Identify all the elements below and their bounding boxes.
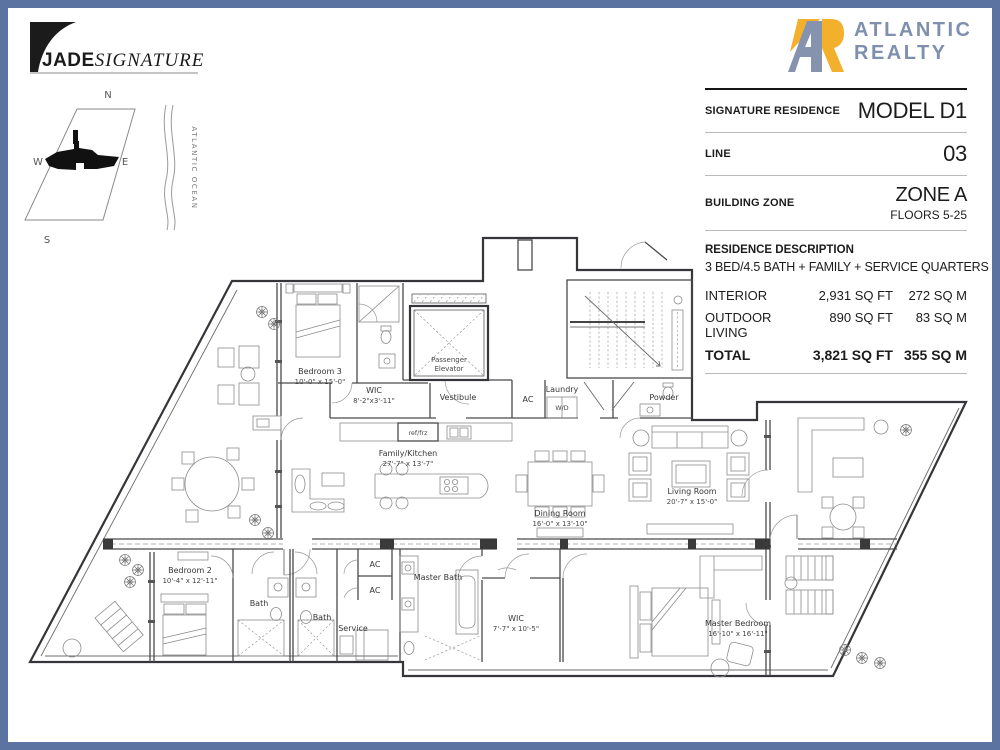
room-label: Dining Room bbox=[534, 509, 585, 518]
room-dims: 16'-10" x 16'-11" bbox=[708, 630, 768, 638]
central-wall-band bbox=[103, 515, 897, 575]
room-dims: 20'-7" x 15'-0" bbox=[667, 498, 718, 506]
room-label: Family/Kitchen bbox=[379, 449, 438, 458]
room-label: Elevator bbox=[434, 365, 463, 373]
room-label: Bath bbox=[313, 613, 332, 622]
brochure-page: JADESIGNATURE ATLANTIC REALTY SIGNATURE … bbox=[0, 0, 1000, 750]
room-dims: 7'-7" x 10'-5" bbox=[493, 625, 539, 633]
room-label: Master Bath bbox=[414, 573, 462, 582]
room-label: Bath bbox=[250, 599, 269, 608]
exterior-walls bbox=[30, 238, 966, 676]
room-label: W/D bbox=[555, 405, 568, 412]
room-label: ref/frz bbox=[409, 430, 428, 437]
bedroom3-furniture bbox=[286, 284, 350, 357]
room-label: Passenger bbox=[431, 356, 467, 364]
service-furniture bbox=[340, 630, 388, 660]
bath3-fixtures bbox=[359, 286, 399, 368]
room-label: Bedroom 3 bbox=[298, 367, 342, 376]
room-label: Living Room bbox=[667, 487, 716, 496]
floor-plan: Bedroom 3 10'-0" x 15'-0" WIC 8'-2"x3'-1… bbox=[0, 0, 1000, 750]
room-dims: 8'-2"x3'-11" bbox=[353, 397, 395, 405]
room-label: Master Bedroom bbox=[705, 619, 771, 628]
terrace-glass-walls bbox=[148, 283, 771, 676]
stairwell bbox=[567, 280, 692, 378]
room-dims: 10'-4" x 12'-11" bbox=[162, 577, 217, 585]
room-label: Laundry bbox=[546, 385, 579, 394]
room-label: AC bbox=[370, 586, 381, 595]
room-label: AC bbox=[523, 395, 534, 404]
family-room-sofa bbox=[292, 469, 344, 512]
room-label: WIC bbox=[366, 386, 382, 395]
room-label: AC bbox=[370, 560, 381, 569]
room-label: Vestibule bbox=[440, 393, 477, 402]
master-bedroom-furniture bbox=[630, 556, 762, 677]
room-dims: 10'-0" x 15'-0" bbox=[295, 378, 346, 386]
west-terrace-furniture bbox=[63, 307, 281, 658]
room-label: WIC bbox=[508, 614, 524, 623]
room-dims: 27'-7" x 13'-7" bbox=[383, 460, 434, 468]
room-dims: 16'-0" x 13'-10" bbox=[532, 520, 587, 528]
master-bath-fixtures bbox=[400, 556, 480, 660]
living-room-furniture bbox=[629, 426, 749, 534]
room-label: Bedroom 2 bbox=[168, 566, 212, 575]
room-label: Powder bbox=[649, 393, 679, 402]
room-label: Service bbox=[338, 624, 368, 633]
